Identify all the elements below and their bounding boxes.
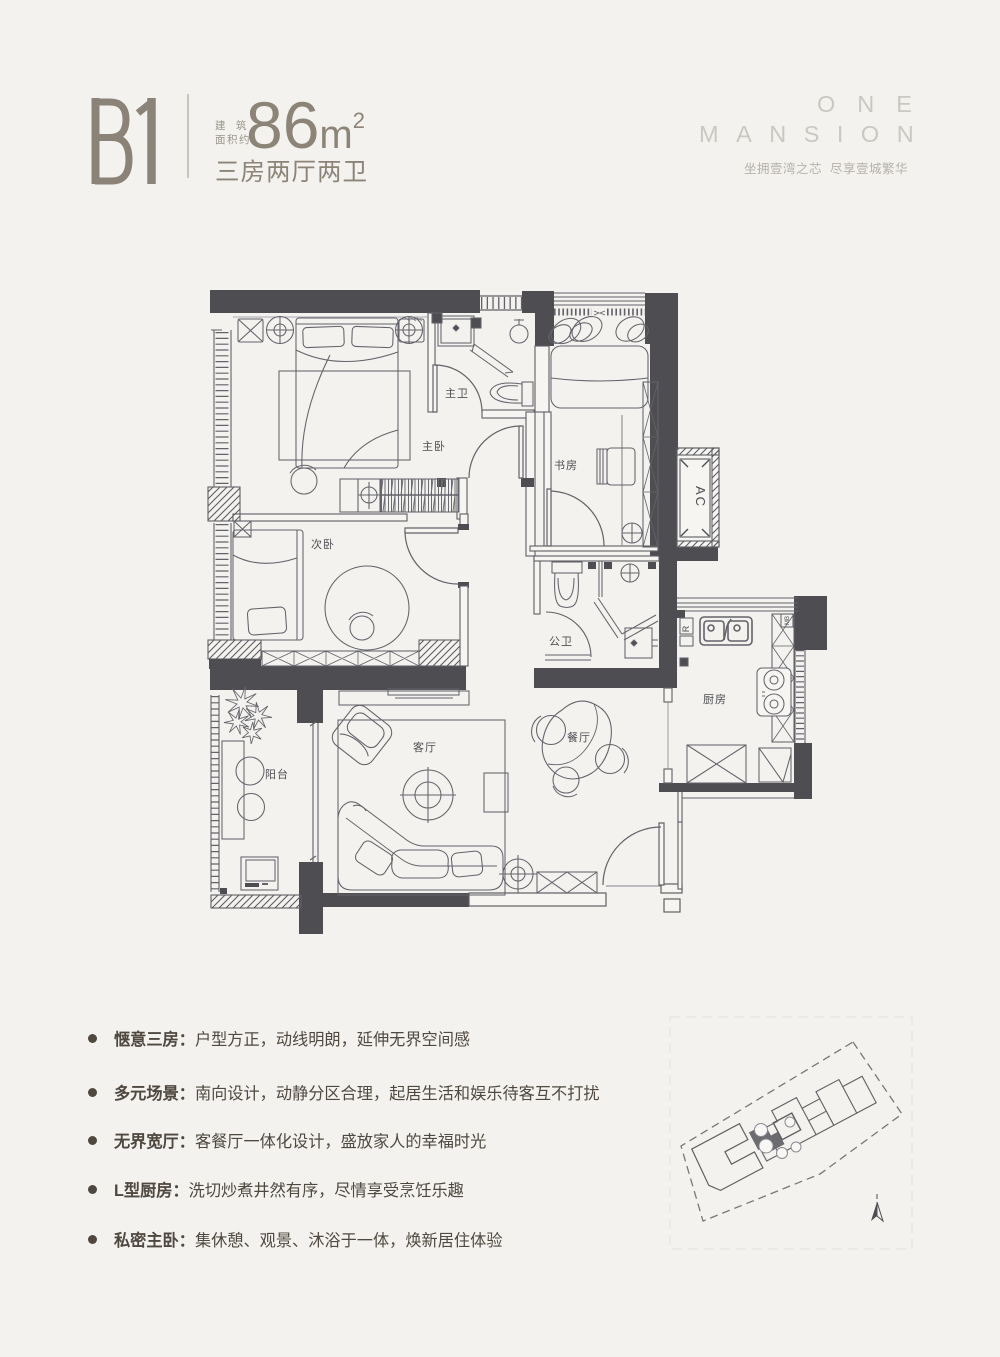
- svg-text:MB: MB: [785, 616, 791, 625]
- svg-text:公卫: 公卫: [549, 636, 573, 648]
- svg-text:客厅: 客厅: [413, 740, 437, 754]
- svg-text:主卧: 主卧: [422, 440, 446, 453]
- svg-text:次卧: 次卧: [311, 537, 335, 551]
- svg-text:餐厅: 餐厅: [567, 730, 591, 744]
- svg-text:阳台: 阳台: [265, 767, 289, 781]
- svg-text:主卫: 主卫: [445, 387, 469, 400]
- svg-text:厨房: 厨房: [703, 693, 727, 706]
- svg-text:AC: AC: [693, 486, 708, 508]
- svg-text:书房: 书房: [554, 459, 578, 472]
- svg-text:R: R: [681, 625, 691, 632]
